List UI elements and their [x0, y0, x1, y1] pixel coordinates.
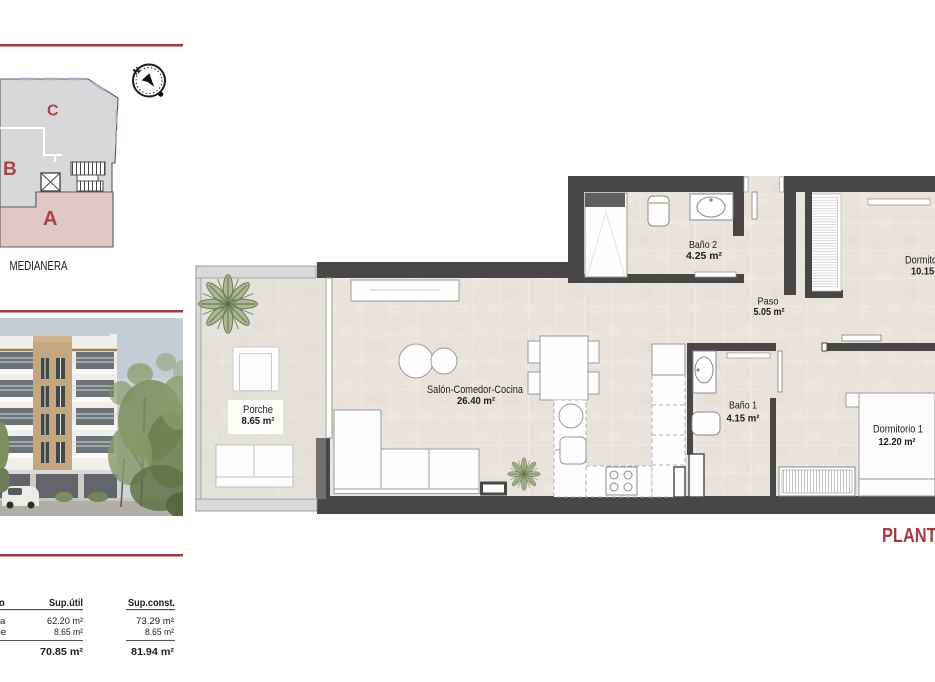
svg-text:8.65 m²: 8.65 m² [54, 627, 83, 638]
svg-text:Baño 1: Baño 1 [729, 400, 757, 412]
svg-text:10.15 m²: 10.15 m² [911, 267, 935, 278]
svg-text:Salón-Comedor-Cocina: Salón-Comedor-Cocina [427, 384, 524, 396]
svg-text:Porche: Porche [243, 404, 273, 416]
svg-text:Uso: Uso [0, 598, 5, 609]
svg-text:MEDIANERA: MEDIANERA [10, 259, 69, 273]
svg-text:C: C [47, 103, 59, 120]
svg-text:8.65 m²: 8.65 m² [242, 416, 276, 427]
svg-text:Paso: Paso [758, 296, 779, 308]
svg-text:PLANTA BAJA: PLANTA BAJA [882, 523, 935, 546]
svg-text:Sup.const.: Sup.const. [128, 598, 175, 609]
svg-text:4.25 m²: 4.25 m² [686, 251, 723, 262]
svg-text:Sup.útil: Sup.útil [49, 598, 83, 609]
svg-text:26.40 m²: 26.40 m² [457, 396, 496, 407]
svg-text:70.85 m²: 70.85 m² [40, 647, 84, 658]
svg-text:12.20 m²: 12.20 m² [879, 437, 917, 448]
svg-text:5.05 m²: 5.05 m² [754, 307, 786, 318]
svg-text:Dormitorio 1: Dormitorio 1 [873, 424, 923, 436]
svg-text:Baño 2: Baño 2 [689, 239, 717, 251]
svg-text:B: B [3, 159, 17, 180]
svg-text:Vivienda: Vivienda [0, 616, 6, 627]
svg-text:Dormitorio 2: Dormitorio 2 [905, 255, 935, 267]
svg-text:Porche: Porche [0, 627, 6, 638]
svg-text:4.15 m²: 4.15 m² [727, 414, 761, 425]
svg-text:73.29 m²: 73.29 m² [136, 616, 174, 627]
svg-text:62.20 m²: 62.20 m² [47, 616, 83, 627]
svg-text:81.94 m²: 81.94 m² [131, 647, 175, 658]
svg-text:8.65 m²: 8.65 m² [145, 627, 174, 638]
svg-text:A: A [43, 208, 57, 230]
